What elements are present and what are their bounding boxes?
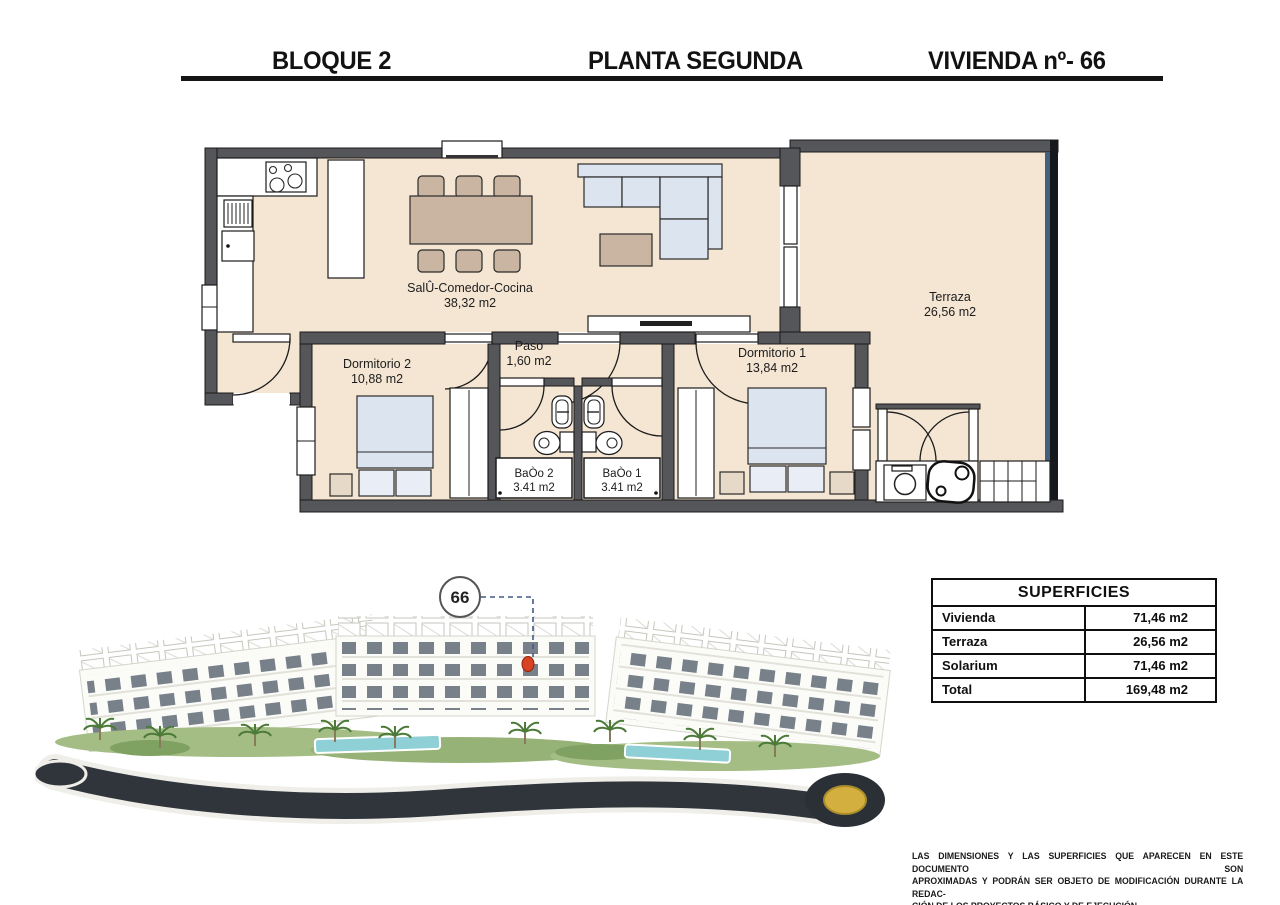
superficies-table: SUPERFICIES Vivienda 71,46 m2 Terraza 26…	[931, 578, 1217, 703]
label-dorm1: Dormitorio 1	[738, 346, 806, 360]
tv	[640, 321, 692, 326]
dorm2-door-leaf	[445, 334, 492, 342]
bed-dorm2	[357, 396, 433, 468]
floor-plan: SalÛ-Comedor-Cocina 38,32 m2 Paso 1,60 m…	[200, 135, 1070, 520]
table-row: Solarium 71,46 m2	[933, 653, 1215, 677]
label-bano1: BaÒo 1	[603, 467, 642, 480]
toilet-tank	[560, 432, 574, 452]
header-rule	[181, 76, 1163, 81]
table-row: Vivienda 71,46 m2	[933, 605, 1215, 629]
coffee-table	[600, 234, 652, 266]
header-floor-title: PLANTA SEGUNDA	[588, 47, 803, 76]
label-salon: SalÛ-Comedor-Cocina	[407, 280, 533, 295]
nightstand	[720, 472, 744, 494]
nightstand	[830, 472, 854, 494]
window-dorm1	[853, 388, 870, 427]
toilet	[534, 432, 560, 455]
header-unit-title: VIVIENDA nº- 66	[928, 47, 1106, 76]
bano1-door-leaf	[612, 378, 662, 386]
closet-door-leaf	[878, 409, 887, 461]
label-bano2: BaÒo 2	[515, 467, 554, 480]
superficies-table-title: SUPERFICIES	[933, 580, 1215, 605]
disclaimer-line: LAS DIMENSIONES Y LAS SUPERFICIES QUE AP…	[912, 851, 1243, 876]
toilet-tank	[582, 432, 596, 452]
row-label: Total	[933, 679, 1086, 701]
label-dorm2-area: 10,88 m2	[351, 372, 403, 386]
row-value: 169,48 m2	[1086, 679, 1215, 701]
row-label: Solarium	[933, 655, 1086, 677]
table-row: Total 169,48 m2	[933, 677, 1215, 701]
entry-door-leaf	[233, 334, 290, 342]
dining-table	[410, 196, 532, 244]
row-label: Terraza	[933, 631, 1086, 653]
unit-location-dot	[522, 657, 534, 672]
disclaimer: LAS DIMENSIONES Y LAS SUPERFICIES QUE AP…	[912, 851, 1243, 905]
tv-unit	[588, 316, 750, 332]
label-bano2-area: 3.41 m2	[513, 482, 555, 494]
dining-set	[410, 176, 532, 272]
label-bano1-area: 3.41 m2	[601, 482, 643, 494]
bano2-door-leaf	[500, 378, 544, 386]
disclaimer-line: APROXIMADAS Y PODRÁN SER OBJETO DE MODIF…	[912, 876, 1243, 901]
label-terraza-area: 26,56 m2	[924, 305, 976, 319]
row-value: 71,46 m2	[1086, 655, 1215, 677]
paso-door-leaf	[558, 334, 620, 342]
boiler	[926, 460, 975, 504]
building-block-right	[606, 617, 893, 756]
terrace-glazing	[784, 186, 797, 244]
label-paso-area: 1,60 m2	[506, 354, 551, 368]
label-dorm1-area: 13,84 m2	[746, 361, 798, 375]
table-row: Terraza 26,56 m2	[933, 629, 1215, 653]
access-road	[35, 761, 885, 827]
site-render: 66	[35, 575, 895, 830]
unit-marker-number: 66	[451, 588, 470, 607]
row-value: 26,56 m2	[1086, 631, 1215, 653]
building-block-middle	[336, 616, 595, 716]
roundabout-center	[824, 786, 866, 814]
toilet	[596, 432, 622, 455]
glass-railing	[1045, 152, 1050, 500]
row-label: Vivienda	[933, 607, 1086, 629]
header-block-title: BLOQUE 2	[272, 47, 391, 76]
disclaimer-line: CIÓN DE LOS PROYECTOS BÁSICO Y DE EJECUC…	[912, 901, 1243, 905]
label-terraza: Terraza	[929, 290, 971, 304]
row-value: 71,46 m2	[1086, 607, 1215, 629]
label-paso: Paso	[515, 339, 544, 353]
bed-dorm1	[748, 388, 826, 464]
plan-sheet: BLOQUE 2 PLANTA SEGUNDA VIVIENDA nº- 66	[0, 0, 1280, 905]
kitchen-island	[328, 160, 364, 278]
dorm1-door-leaf	[696, 334, 758, 342]
closet-door-leaf	[969, 409, 978, 461]
label-dorm2: Dormitorio 2	[343, 357, 411, 371]
nightstand	[330, 474, 352, 496]
label-salon-area: 38,32 m2	[444, 296, 496, 310]
